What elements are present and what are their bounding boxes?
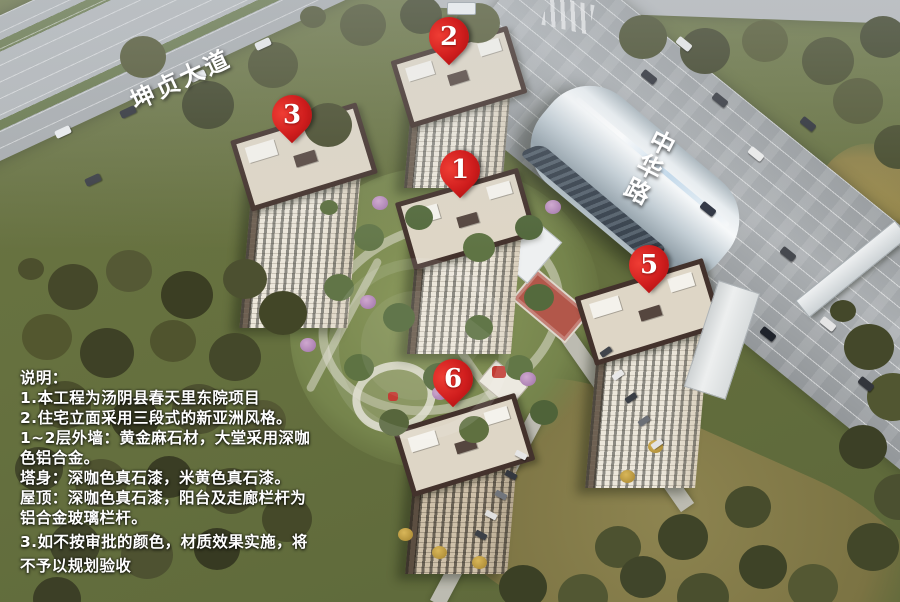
blossom-tree — [300, 338, 316, 352]
note-line: 不予以规划验收 — [20, 556, 340, 576]
building-marker-6: 6 — [425, 351, 482, 408]
blossom-tree — [520, 372, 536, 386]
marker-number: 3 — [272, 95, 312, 135]
residential-tower-1 — [402, 184, 528, 356]
aerial-site-map: 坤贞大道 中华路 1 2 3 5 6 说明： 1.本工程为汤阴县春天里东院项目 … — [0, 0, 900, 602]
building-marker-5: 5 — [621, 237, 678, 294]
courtyard-bushes — [320, 200, 338, 215]
blossom-tree — [545, 200, 561, 214]
blossom-tree — [372, 196, 388, 210]
autumn-tree — [432, 546, 447, 559]
red-canopy — [492, 366, 506, 378]
note-line: 塔身：深咖色真石漆，米黄色真石漆。 — [20, 468, 340, 488]
building-marker-3: 3 — [264, 87, 321, 144]
trees-right-bottom — [830, 300, 856, 322]
notes-block: 说明： 1.本工程为汤阴县春天里东院项目 2.住宅立面采用三段式的新亚洲风格。 … — [20, 368, 340, 576]
marker-number: 2 — [429, 17, 469, 57]
marker-number: 6 — [433, 359, 473, 399]
note-line: 铝合金玻璃栏杆。 — [20, 508, 340, 528]
autumn-tree — [620, 470, 635, 483]
residential-tower-3 — [238, 120, 368, 332]
building-marker-2: 2 — [421, 9, 478, 66]
note-line: 1.本工程为汤阴县春天里东院项目 — [20, 388, 340, 408]
bus — [447, 2, 476, 15]
marker-number: 5 — [629, 245, 669, 285]
note-line: 说明： — [20, 368, 340, 388]
note-line: 屋顶：深咖色真石漆，阳台及走廊栏杆为 — [20, 488, 340, 508]
note-line: 2.住宅立面采用三段式的新亚洲风格。 — [20, 408, 340, 428]
marker-number: 1 — [440, 150, 480, 190]
note-line: 3.如不按审批的颜色，材质效果实施，将 — [20, 532, 340, 552]
car — [84, 173, 102, 187]
note-line: 色铝合金。 — [20, 448, 340, 468]
building-marker-1: 1 — [432, 142, 489, 199]
autumn-tree — [398, 528, 413, 541]
woodland-left — [18, 258, 44, 280]
blossom-tree — [360, 295, 376, 309]
play-equipment — [388, 392, 398, 401]
note-line: 1~2层外墙：黄金麻石材，大堂采用深咖 — [20, 428, 340, 448]
autumn-tree — [472, 556, 487, 569]
trees-top-band — [300, 6, 326, 28]
car — [799, 116, 816, 132]
